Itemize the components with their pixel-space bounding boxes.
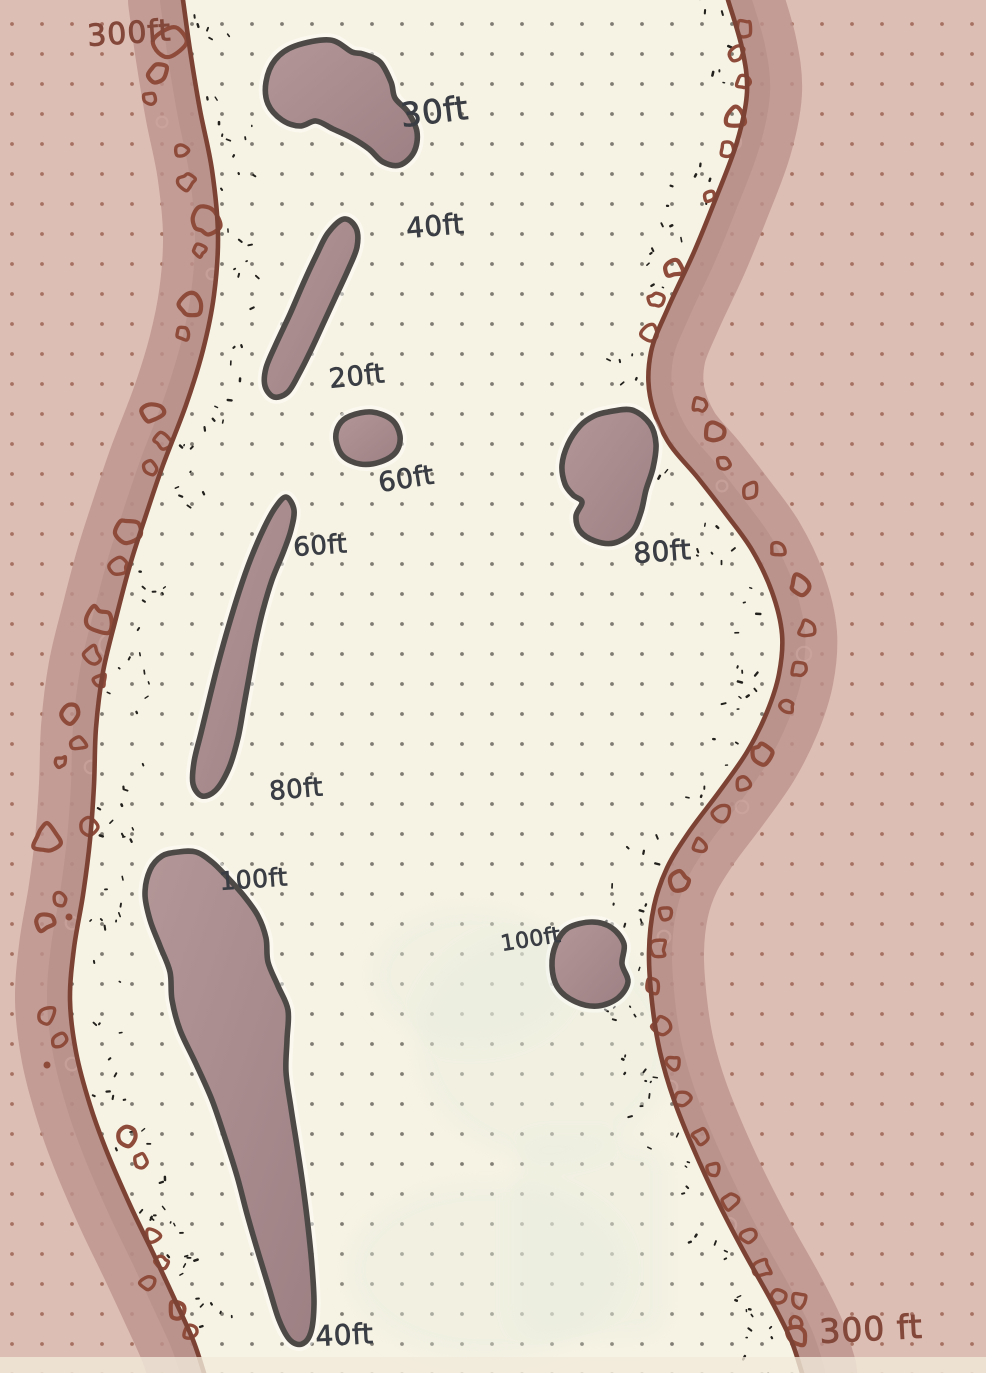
depth-label-80ft-long-island: 80ft (268, 772, 324, 807)
depth-label-40ft-upper: 40ft (405, 207, 466, 245)
map-page: 300ft 30ft 40ft 20ft 60ft 60ft 80ft 80ft… (0, 0, 986, 1373)
depth-label-40ft-south: 40ft (315, 1317, 375, 1353)
depth-label-20ft: 20ft (327, 358, 386, 395)
depth-label-100ft-west: 100ft (218, 862, 288, 896)
map-canvas: 300ft 30ft 40ft 20ft 60ft 60ft 80ft 80ft… (0, 0, 986, 1373)
depth-label-30ft: 30ft (398, 88, 470, 135)
page-edge-strip (0, 1357, 986, 1373)
shore-depth-label-top-left: 300ft (86, 13, 172, 54)
shore-depth-label-bottom-right: 300 ft (818, 1307, 923, 1351)
island-60ft-small (336, 412, 400, 465)
depth-label-60ft-long-island: 60ft (292, 529, 348, 563)
island-100ft-east (552, 922, 628, 1006)
depth-label-80ft-east: 80ft (632, 533, 692, 570)
